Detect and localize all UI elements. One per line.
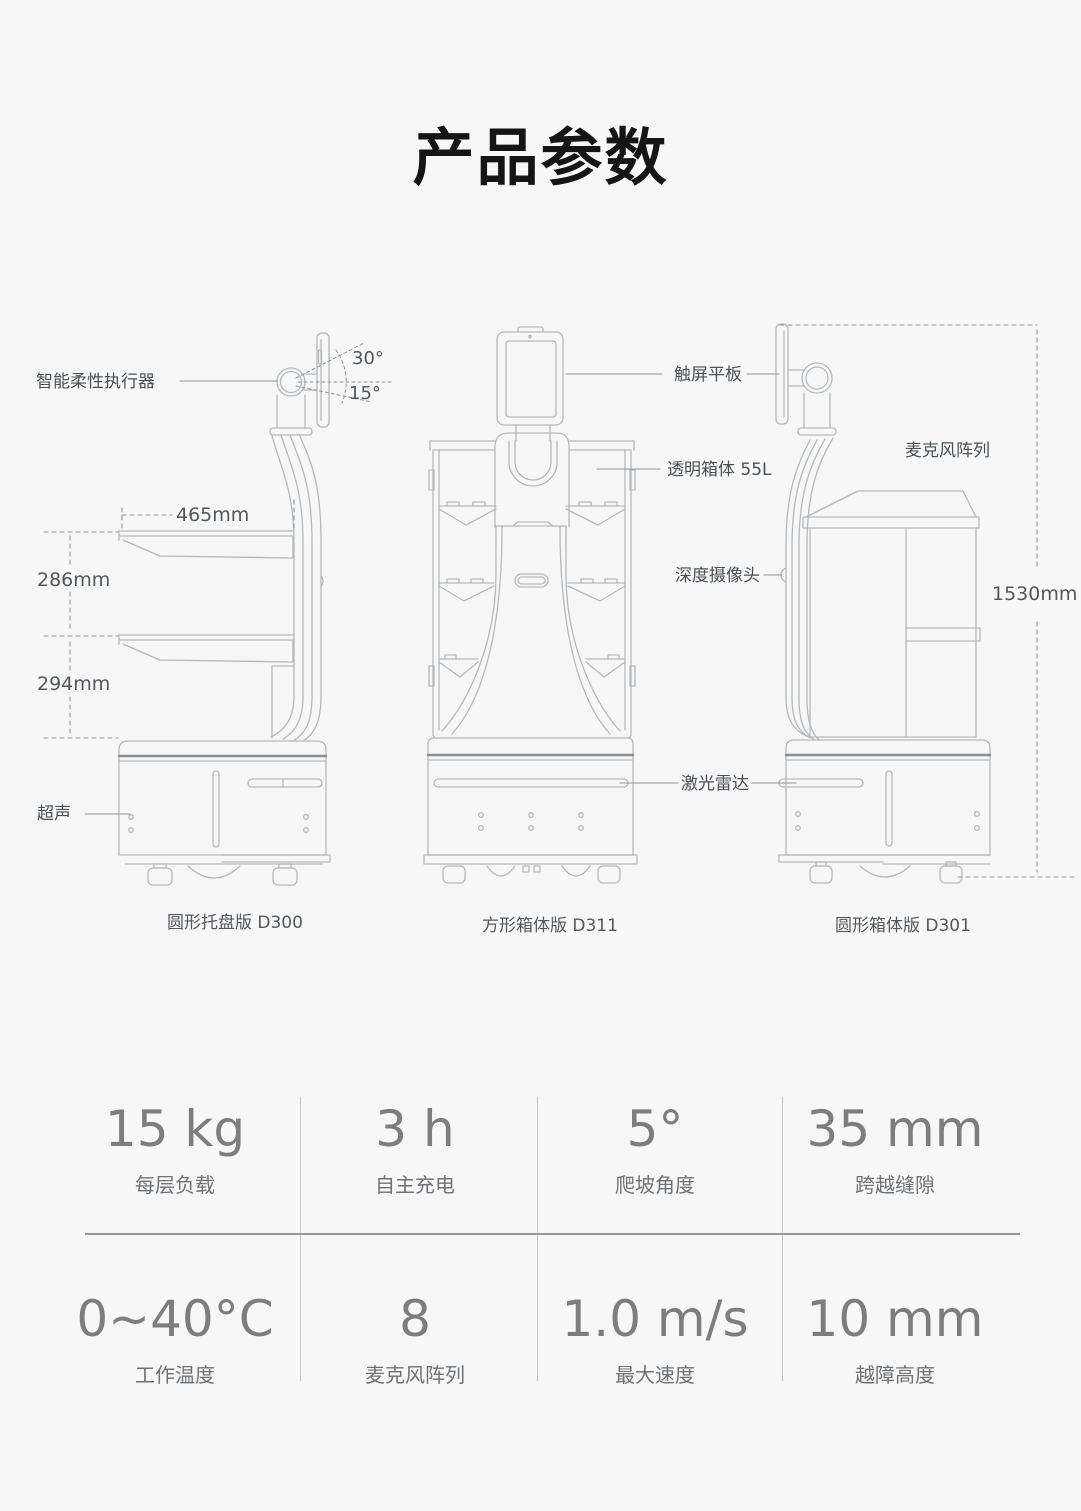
label-ultrasonic: 超声 [37, 804, 71, 824]
dimension-tray-gap-lower: 294mm [37, 673, 110, 696]
product-spec-page: 产品参数 [0, 0, 1081, 1511]
robot-line-art [0, 0, 1081, 1511]
dimension-tray-gap-upper: 286mm [37, 569, 110, 592]
dimension-tray-width: 465mm [176, 504, 249, 527]
label-actuator: 智能柔性执行器 [36, 372, 155, 392]
label-mic-array: 麦克风阵列 [905, 441, 990, 461]
robot-middle-drawing [424, 327, 637, 883]
dimension-total-height: 1530mm [992, 583, 1077, 606]
caption-model-d311: 方形箱体版 D311 [482, 916, 618, 936]
label-touchscreen: 触屏平板 [674, 365, 742, 385]
caption-model-d300: 圆形托盘版 D300 [167, 913, 303, 933]
label-lidar: 激光雷达 [681, 774, 749, 794]
label-screen-tilt-up: 30° [352, 349, 384, 369]
label-transparent-cabinet: 透明箱体 55L [667, 460, 772, 480]
label-depth-camera: 深度摄像头 [675, 566, 760, 586]
robot-right-drawing [776, 324, 990, 883]
robot-left-drawing [119, 333, 330, 885]
caption-model-d301: 圆形箱体版 D301 [835, 916, 971, 936]
label-screen-tilt-down: 15° [349, 384, 381, 404]
